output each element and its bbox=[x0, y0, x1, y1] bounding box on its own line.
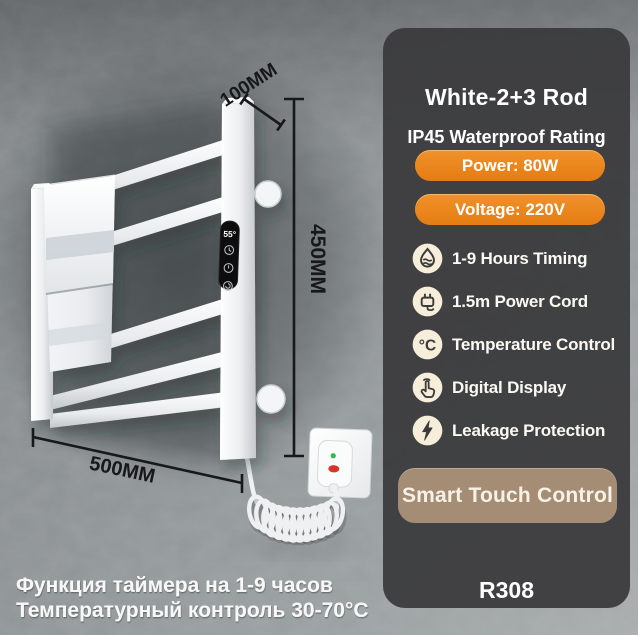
svg-text:°C: °C bbox=[419, 337, 436, 354]
smart-touch-pill: Smart Touch Control bbox=[398, 468, 617, 523]
dimension-side-label: 450MM bbox=[306, 224, 329, 294]
touch-hand-icon bbox=[412, 372, 443, 403]
feature-label: 1.5m Power Cord bbox=[452, 292, 588, 312]
waterproof-rating: IP45 Waterproof Rating bbox=[383, 127, 630, 148]
drop-waves-icon bbox=[412, 243, 443, 274]
feature-label: Digital Display bbox=[452, 378, 566, 398]
power-outlet bbox=[308, 428, 372, 498]
feature-label: Temperature Control bbox=[452, 335, 615, 355]
feature-item-temperature: °C Temperature Control bbox=[412, 329, 626, 360]
digital-display: 55° bbox=[218, 221, 239, 291]
product-title: White-2+3 Rod bbox=[383, 84, 630, 111]
feature-item-leakage: Leakage Protection bbox=[412, 415, 626, 446]
feature-label: 1-9 Hours Timing bbox=[452, 249, 587, 269]
feature-item-display: Digital Display bbox=[412, 372, 626, 403]
model-number: R308 bbox=[383, 577, 630, 604]
feature-label: Leakage Protection bbox=[452, 421, 605, 441]
display-temperature: 55° bbox=[223, 229, 237, 239]
power-plug-icon bbox=[412, 286, 443, 317]
feature-item-cord: 1.5m Power Cord bbox=[412, 286, 626, 317]
info-panel: White-2+3 Rod IP45 Waterproof Rating Pow… bbox=[383, 28, 630, 608]
power-spec-pill: Power: 80W bbox=[415, 150, 605, 181]
caption-line-2: Температурный контроль 30-70°C bbox=[16, 599, 369, 622]
celsius-icon: °C bbox=[412, 329, 443, 360]
feature-list: 1-9 Hours Timing 1.5m Power Cord °C bbox=[412, 243, 626, 458]
voltage-spec-pill: Voltage: 220V bbox=[415, 194, 605, 225]
feature-item-timing: 1-9 Hours Timing bbox=[412, 243, 626, 274]
lightning-icon bbox=[412, 415, 443, 446]
towel bbox=[44, 176, 115, 372]
caption-line-1: Функция таймера на 1-9 часов bbox=[16, 574, 333, 597]
